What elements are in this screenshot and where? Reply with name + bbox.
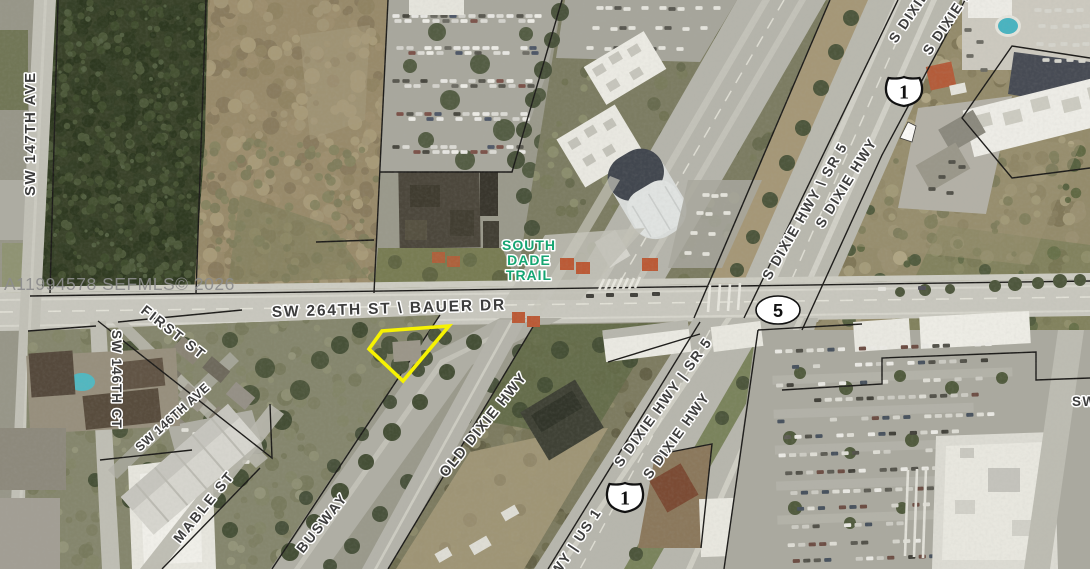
svg-text:SW 146TH CT: SW 146TH CT xyxy=(109,330,124,429)
svg-text:SW 147TH AVE: SW 147TH AVE xyxy=(22,71,39,196)
svg-text:TRAIL: TRAIL xyxy=(506,267,552,283)
svg-text:SW 26: SW 26 xyxy=(1072,394,1090,409)
svg-text:SOUTH: SOUTH xyxy=(502,237,556,253)
svg-text:A11994578 SEFMLS© 2026: A11994578 SEFMLS© 2026 xyxy=(4,274,235,294)
svg-text:5: 5 xyxy=(773,301,783,321)
svg-text:DADE: DADE xyxy=(507,252,551,268)
